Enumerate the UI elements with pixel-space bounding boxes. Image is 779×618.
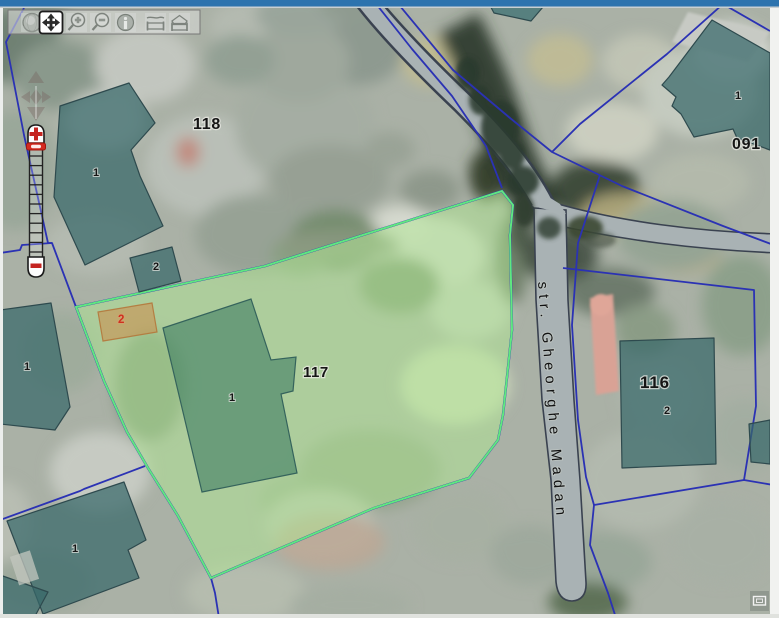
svg-text:117: 117: [303, 364, 329, 381]
svg-text:1: 1: [24, 361, 30, 373]
svg-text:1: 1: [72, 543, 78, 555]
svg-text:116: 116: [640, 373, 670, 392]
svg-text:1: 1: [735, 90, 741, 102]
svg-text:2: 2: [153, 261, 159, 273]
svg-text:1: 1: [93, 167, 99, 179]
svg-text:091: 091: [732, 136, 761, 153]
svg-text:1: 1: [229, 392, 235, 404]
svg-text:118: 118: [193, 116, 221, 133]
svg-text:2: 2: [118, 314, 124, 326]
svg-text:2: 2: [664, 405, 670, 417]
